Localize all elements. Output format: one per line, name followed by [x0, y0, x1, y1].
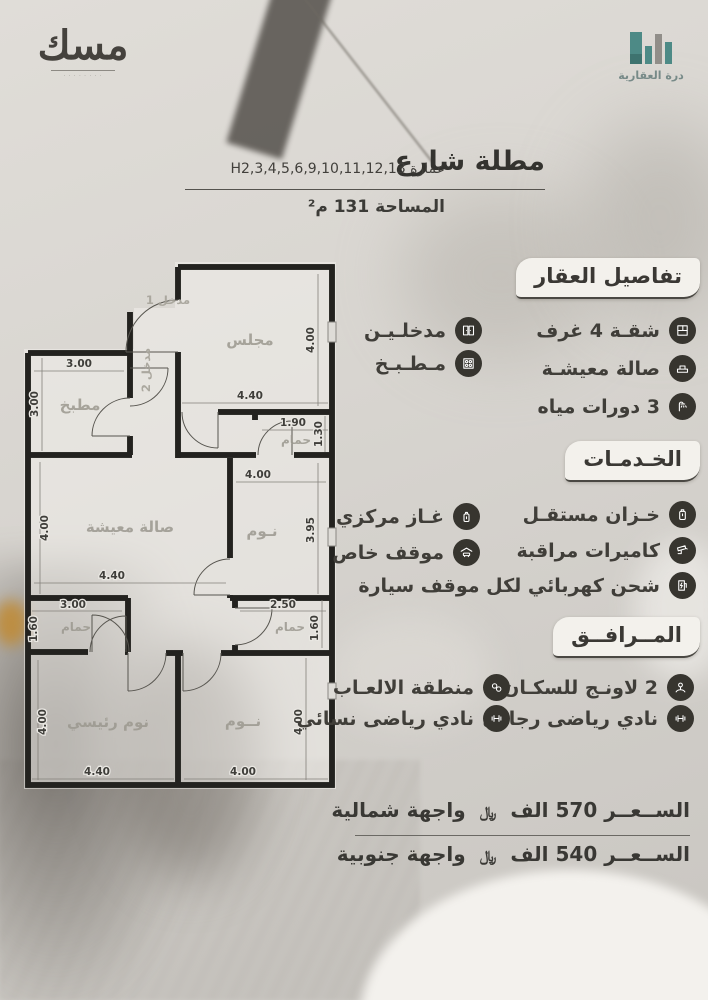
- darrah-logo-name: درة العقارية: [608, 69, 694, 82]
- room-label-kitchen: مطبخ: [60, 396, 101, 414]
- price-south-facade: واجهة جنوبية: [337, 842, 466, 866]
- misk-logo-wordmark: مسك: [28, 26, 138, 66]
- room-label-living: صالة معيشة: [86, 518, 174, 536]
- dim-bed-mid-w: 4.00: [245, 469, 271, 481]
- ev-charger-icon: [669, 572, 696, 599]
- amenities-heading: المــرافــق: [553, 617, 700, 658]
- dim-kitchen-h: 3.00: [29, 391, 41, 417]
- darrah-buildings-icon: [608, 30, 694, 64]
- room-label-master: نوم رئيسي: [67, 713, 149, 731]
- header-divider: [185, 189, 545, 190]
- room-label-bath2: حمام: [61, 620, 91, 635]
- entrances-icon: [455, 317, 482, 344]
- price-north-amount: الســعــر 570 الف: [510, 798, 690, 822]
- residents-lounge-icon: [667, 674, 694, 701]
- room-label-majlis: مجلس: [226, 331, 273, 349]
- entrance1-label: مدخل 1: [146, 293, 190, 307]
- dim-master-w: 4.40: [84, 766, 110, 778]
- price-divider: [355, 835, 690, 836]
- white-round-table: [360, 870, 708, 1000]
- dim-bath2-w: 3.00: [60, 599, 86, 611]
- detail-item-living: صالة معيشـة: [542, 355, 696, 382]
- dim-bed-mid-h: 3.95: [305, 517, 317, 543]
- details-heading: تفاصيل العقار: [516, 258, 700, 299]
- womens-gym-icon: [483, 705, 510, 732]
- dim-majlis-h: 4.00: [305, 327, 317, 353]
- amenity-item-gym-women: نادي رياضى نسائي: [297, 705, 510, 732]
- light-track-line: [300, 0, 434, 164]
- real-estate-flyer: مسك · · · · · · · · درة العقارية مطلة شا…: [0, 0, 708, 1000]
- cctv-camera-icon: [669, 537, 696, 564]
- dim-bath2-h: 1.60: [28, 616, 40, 642]
- building-numbers: عمارة H2,3,4,5,6,9,10,11,12,13: [230, 161, 445, 177]
- detail-item-baths: 3 دورات مياه: [538, 393, 696, 420]
- ceiling-beam: [226, 0, 336, 159]
- service-item-ev: شحن كهربائي لكل موقف سيارة: [358, 572, 696, 599]
- kitchen-icon: [455, 350, 482, 377]
- amenity-item-gym-men: نادي رياضى رجالي: [482, 705, 694, 732]
- misk-logo-caption: · · · · · · · ·: [51, 70, 115, 79]
- amenity-item-lounge: 2 لاونـج للسكـان: [503, 674, 694, 701]
- darrah-logo: درة العقارية: [608, 30, 694, 82]
- area-label: المساحة 131 م²: [308, 197, 445, 217]
- service-item-gas: غـاز مركزي: [336, 503, 480, 530]
- dim-bath1-h: 1.30: [313, 421, 325, 447]
- water-tank-icon: [669, 501, 696, 528]
- room-label-bed-mid: نـوم: [246, 522, 277, 540]
- price-south-amount: الســعــر 540 الف: [510, 842, 690, 866]
- dim-bath3-w: 2.50: [270, 599, 296, 611]
- room-label-bed-br: نــوم: [225, 712, 261, 730]
- price-north: الســعــر 570 الف ﷼ واجهة شمالية: [331, 798, 690, 822]
- room-label-bath1: حمام: [281, 433, 311, 448]
- gas-cylinder-icon: [453, 503, 480, 530]
- riyal-currency-symbol: ﷼: [480, 803, 497, 821]
- dim-bed-br-w: 4.00: [230, 766, 256, 778]
- amenity-item-games: منطقة الالعـاب: [333, 674, 510, 701]
- detail-item-unit: شقـة 4 غرف: [536, 317, 696, 344]
- private-parking-icon: [453, 539, 480, 566]
- service-item-parking: موقف خاص: [332, 539, 480, 566]
- dim-majlis-w: 4.40: [237, 390, 263, 402]
- wood-floor: [0, 760, 420, 1000]
- service-item-cameras: كاميرات مراقبة: [516, 537, 696, 564]
- living-room-icon: [669, 355, 696, 382]
- dim-master-h: 4.00: [37, 709, 49, 735]
- service-item-tank: خـزان مستقـل: [523, 501, 696, 528]
- dim-living-w: 4.40: [99, 570, 125, 582]
- play-area-icon: [483, 674, 510, 701]
- room-label-bath3: حمام: [275, 620, 305, 635]
- price-north-facade: واجهة شمالية: [331, 798, 465, 822]
- bathrooms-icon: [669, 393, 696, 420]
- dim-living-h: 4.00: [39, 515, 51, 541]
- detail-item-entrances: مدخلـيـن: [364, 317, 482, 344]
- dim-bath3-h: 1.60: [309, 615, 321, 641]
- floor-plan: مجلس مطبخ حمام صالة معيشة نـوم حمام حمام…: [0, 250, 345, 795]
- riyal-currency-symbol: ﷼: [480, 847, 497, 865]
- mens-gym-icon: [667, 705, 694, 732]
- misk-logo: مسك · · · · · · · ·: [28, 26, 138, 79]
- entrance2-label: مدخل 2: [139, 348, 153, 392]
- detail-item-kitchen: مـطـبـخ: [375, 350, 482, 377]
- dim-bath1-w: 1.90: [280, 417, 306, 429]
- apartment-icon: [669, 317, 696, 344]
- dim-kitchen-w: 3.00: [66, 358, 92, 370]
- price-south: الســعــر 540 الف ﷼ واجهة جنوبية: [337, 842, 690, 866]
- services-heading: الخـدمـات: [565, 441, 700, 482]
